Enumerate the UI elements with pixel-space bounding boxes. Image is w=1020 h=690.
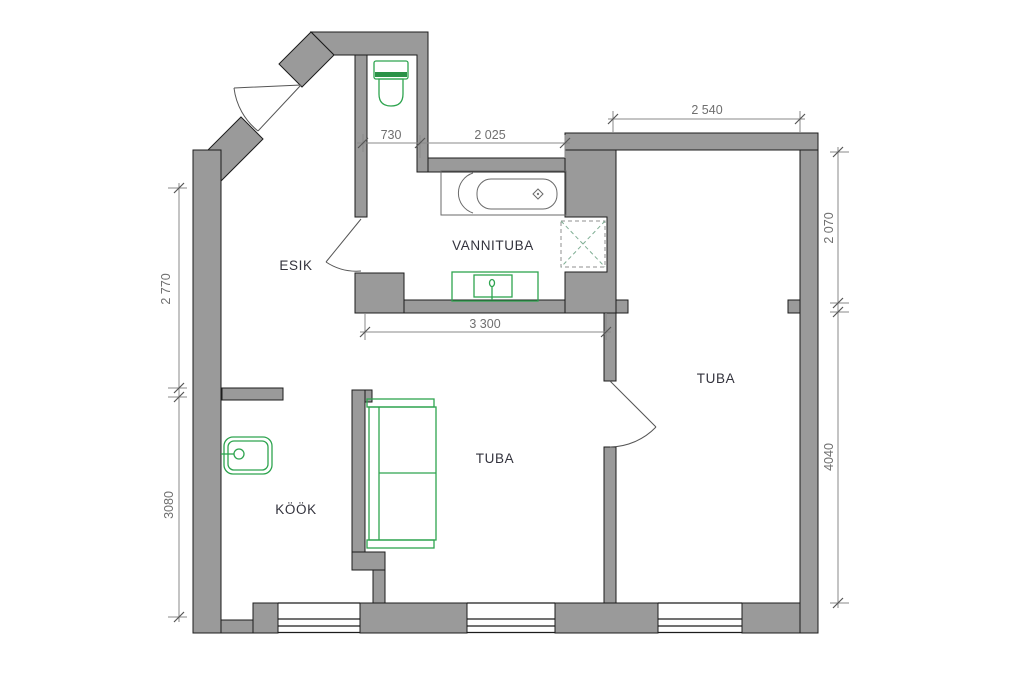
floor-plan-canvas: ESIK VANNITUBA TUBA TUBA KÖÖK 730 2 025 … bbox=[0, 0, 1020, 690]
wall-left bbox=[193, 150, 221, 633]
dim-label-2025: 2 025 bbox=[474, 128, 505, 142]
dim-label-730: 730 bbox=[381, 128, 402, 142]
wall-bathroom-top bbox=[428, 158, 565, 172]
dim-label-3080: 3080 bbox=[162, 491, 176, 519]
dim-label-2540: 2 540 bbox=[691, 103, 722, 117]
wall-top-right bbox=[565, 133, 818, 150]
room-label-esik: ESIK bbox=[279, 258, 312, 273]
dim-label-4040: 4040 bbox=[822, 443, 836, 471]
wall-bottom-pier-2 bbox=[555, 603, 658, 633]
wall-kitchen-divider-step bbox=[352, 552, 385, 570]
wall-bottom-jamb-left bbox=[253, 603, 278, 633]
dim-label-3300: 3 300 bbox=[469, 317, 500, 331]
wall-bathroom-bottom bbox=[404, 300, 565, 313]
room-label-vannituba: VANNITUBA bbox=[452, 238, 534, 253]
room-label-tuba-middle: TUBA bbox=[476, 451, 514, 466]
wall-kitchen-divider-leg bbox=[373, 570, 385, 603]
wall-right bbox=[800, 133, 818, 633]
wall-wc-left bbox=[355, 55, 367, 217]
background bbox=[0, 0, 1020, 690]
wall-divider-lower bbox=[604, 447, 616, 603]
wall-hall-kitchen-stub bbox=[222, 388, 283, 400]
dim-label-2770: 2 770 bbox=[159, 273, 173, 304]
wall-bottom-pier-1 bbox=[360, 603, 467, 633]
wall-bathroom-corner-block bbox=[355, 273, 404, 313]
wall-kitchen-divider bbox=[352, 390, 365, 552]
pilaster-right bbox=[788, 300, 800, 313]
room-label-kook: KÖÖK bbox=[275, 502, 316, 517]
pilaster-left bbox=[616, 300, 628, 313]
room-label-tuba-right: TUBA bbox=[697, 371, 735, 386]
dim-label-2070: 2 070 bbox=[822, 212, 836, 243]
bathtub-drain-dot bbox=[537, 193, 539, 195]
toilet-seat-hinge bbox=[375, 72, 407, 77]
wall-bottom-strip bbox=[221, 620, 253, 633]
